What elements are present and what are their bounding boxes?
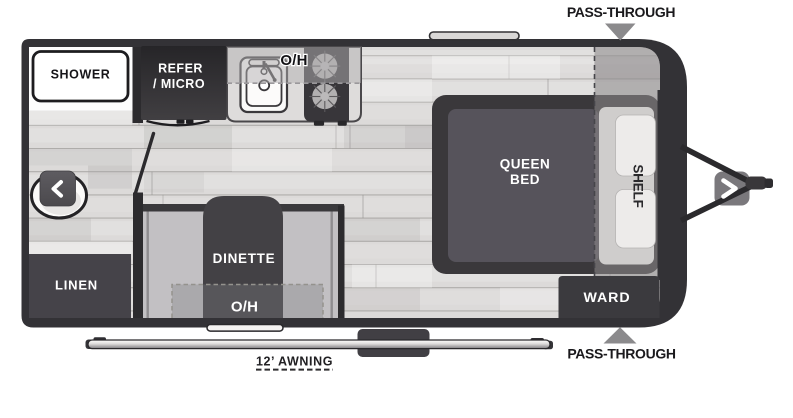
svg-text:QUEEN: QUEEN	[500, 157, 551, 172]
svg-text:/ MICRO: / MICRO	[153, 77, 205, 91]
svg-text:REFER: REFER	[158, 62, 203, 76]
svg-text:PASS-THROUGH: PASS-THROUGH	[567, 4, 676, 20]
svg-text:SHELF: SHELF	[631, 164, 646, 207]
svg-text:LINEN: LINEN	[55, 278, 98, 293]
svg-text:12’ AWNING: 12’ AWNING	[256, 355, 333, 369]
svg-text:O/H: O/H	[280, 52, 307, 69]
svg-text:BED: BED	[510, 172, 540, 187]
svg-text:WARD: WARD	[584, 290, 631, 306]
svg-text:DINETTE: DINETTE	[213, 251, 276, 266]
svg-text:O/H: O/H	[231, 299, 258, 316]
svg-text:SHOWER: SHOWER	[51, 68, 111, 82]
svg-text:PASS-THROUGH: PASS-THROUGH	[567, 346, 676, 362]
